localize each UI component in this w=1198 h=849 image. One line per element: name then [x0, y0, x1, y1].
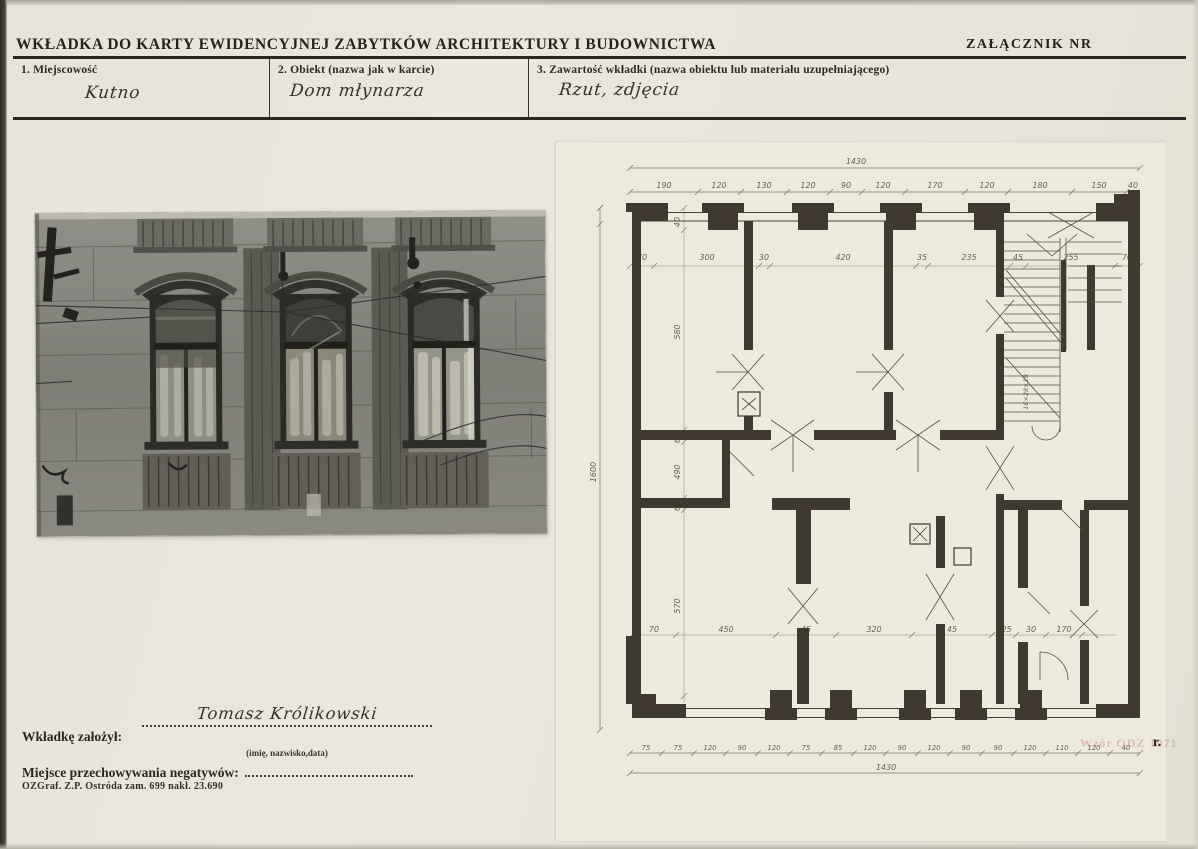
- dim-label: 35: [917, 253, 927, 262]
- stair-note: 16×28×18: [1022, 374, 1030, 410]
- dim-label: 30: [759, 253, 769, 262]
- founder-label: Wkładkę założył:: [22, 729, 122, 745]
- field-locality-label: 1. Miejscowość: [21, 64, 261, 76]
- field-locality: 1. Miejscowość Kutno: [13, 59, 269, 117]
- dim-label: 45: [1013, 253, 1023, 262]
- form-stamp-suffix: r.: [1153, 734, 1161, 750]
- dim-label: 570: [673, 598, 682, 613]
- dim-label: 90: [738, 744, 747, 752]
- dim-label: 1430: [876, 763, 896, 772]
- dim-label: 150: [1091, 181, 1106, 190]
- scan-edge-bottom: [0, 843, 1198, 849]
- field-object-label: 2. Obiekt (nazwa jak w karcie): [278, 64, 520, 76]
- facade-photo-drawing: [35, 210, 547, 536]
- dim-label: 120: [1024, 744, 1037, 752]
- dim-label: 235: [961, 253, 976, 262]
- dim-label: 170: [1056, 625, 1071, 634]
- staircase: [1004, 234, 1122, 680]
- dim-label: 170: [927, 181, 942, 190]
- dim-label: 45: [947, 625, 957, 634]
- dim-label: 1430: [846, 157, 866, 166]
- dim-label: 90: [841, 181, 851, 190]
- floor-plan-drawing: 1430 190 120 130 120 90 120 170 120 180 …: [556, 142, 1166, 841]
- form-stamp-faint: Wzór ODZ 1971: [1080, 736, 1177, 751]
- page-title: WKŁADKA DO KARTY EWIDENCYJNEJ ZABYTKÓW A…: [16, 36, 716, 54]
- dim-label: 75: [642, 744, 651, 752]
- dim-label: 120: [928, 744, 941, 752]
- scan-edge-right: [1192, 0, 1198, 849]
- dim-label: 90: [898, 744, 907, 752]
- dim-label: 420: [835, 253, 850, 262]
- founder-hint: (imię, nazwisko,data): [142, 748, 432, 758]
- dim-label: 75: [674, 744, 683, 752]
- dim-label: 90: [962, 744, 971, 752]
- dim-label: 120: [864, 744, 877, 752]
- fields-row: 1. Miejscowość Kutno 2. Obiekt (nazwa ja…: [13, 59, 1186, 117]
- dim-label: 120: [979, 181, 994, 190]
- plan-sheet: 1430 190 120 130 120 90 120 170 120 180 …: [556, 142, 1166, 841]
- founder-signature-line: Tomasz Królikowski: [142, 704, 432, 727]
- field-object-value: Dom młynarza: [289, 81, 426, 101]
- door-symbols: [716, 212, 1098, 638]
- field-contents: 3. Zawartość wkładki (nazwa obiektu lub …: [528, 59, 1186, 117]
- dim-label: 90: [994, 744, 1003, 752]
- dim-label: 70: [649, 625, 659, 634]
- dim-label: 130: [756, 181, 771, 190]
- founder-signature: Tomasz Królikowski: [196, 704, 378, 723]
- dim-label: 190: [656, 181, 671, 190]
- field-contents-value: Rzut, zdjęcia: [558, 80, 681, 100]
- attachment-label: ZAŁĄCZNIK NR: [966, 37, 1093, 53]
- negatives-row: Miejsce przechowywania negatywów:: [22, 763, 413, 781]
- scan-edge-left: [0, 0, 7, 849]
- dim-label: 580: [673, 324, 682, 339]
- dim-label: 120: [800, 181, 815, 190]
- print-note: OZGraf. Z.P. Ostróda zam. 699 nakł. 23.6…: [22, 781, 223, 792]
- dim-label: 85: [834, 744, 843, 752]
- dim-label: 320: [866, 625, 881, 634]
- negatives-dotted-line: [245, 763, 413, 777]
- dim-label: 30: [1026, 625, 1036, 634]
- dim-label: 120: [711, 181, 726, 190]
- record-card-page: WKŁADKA DO KARTY EWIDENCYJNEJ ZABYTKÓW A…: [0, 0, 1198, 849]
- dim-label: 75: [802, 744, 811, 752]
- negatives-label: Miejsce przechowywania negatywów:: [22, 765, 239, 780]
- dim-label: 40: [673, 217, 682, 227]
- dim-label: 300: [699, 253, 714, 262]
- dim-label: 110: [1056, 744, 1069, 752]
- dim-label: 120: [768, 744, 781, 752]
- dimension-labels: 1430 190 120 130 120 90 120 170 120 180 …: [589, 157, 1138, 772]
- field-contents-label: 3. Zawartość wkładki (nazwa obiektu lub …: [537, 64, 1178, 76]
- fields-rule: [13, 117, 1186, 120]
- dim-label: 180: [1032, 181, 1047, 190]
- dim-label: 490: [673, 464, 682, 479]
- dim-label: 120: [704, 744, 717, 752]
- dim-label: 450: [718, 625, 733, 634]
- scan-edge-top: [0, 0, 1198, 5]
- field-locality-value: Kutno: [84, 83, 141, 103]
- dim-label: 120: [875, 181, 890, 190]
- facade-photograph: [35, 210, 547, 536]
- dim-label: 1600: [589, 462, 598, 482]
- field-object: 2. Obiekt (nazwa jak w karcie) Dom młyna…: [269, 59, 528, 117]
- dim-label: 40: [1128, 181, 1138, 190]
